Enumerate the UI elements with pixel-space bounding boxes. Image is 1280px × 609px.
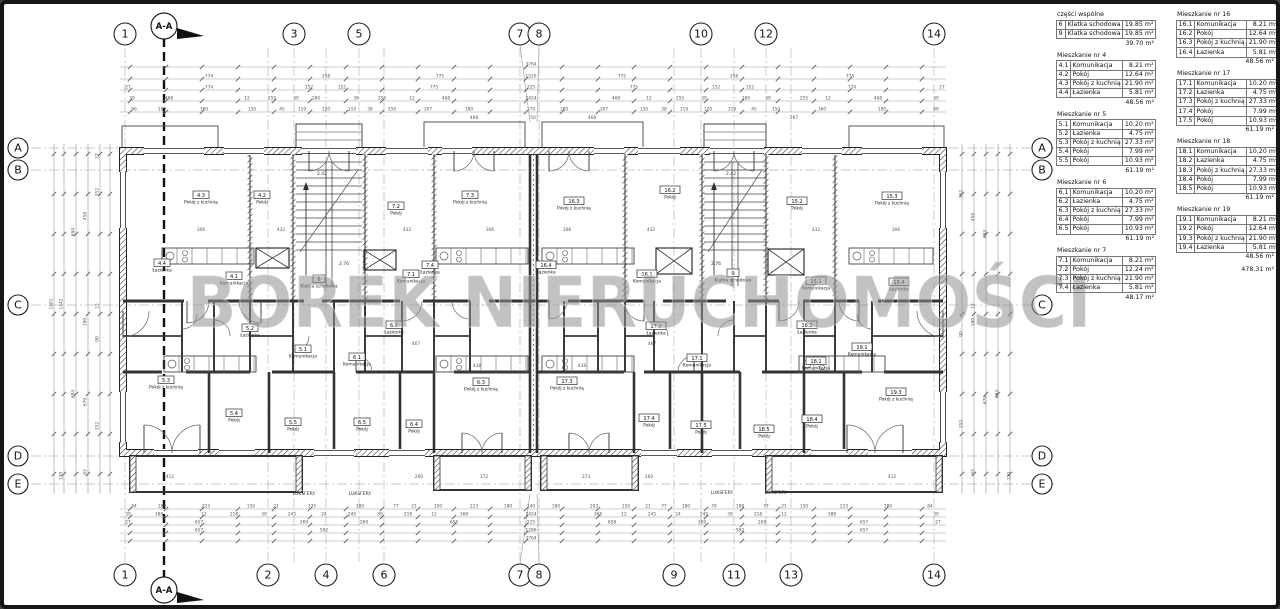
- dim-value: 120: [704, 107, 712, 113]
- room-nm: Komunikacja: [1195, 147, 1247, 156]
- table-title: części wspólne: [1057, 11, 1156, 19]
- room-id: 4.1: [1057, 61, 1071, 70]
- section-direction-flag: [177, 28, 204, 39]
- dim-value: 432: [277, 227, 285, 233]
- table-row: 17.1Komunikacja10.20 m²: [1177, 79, 1280, 88]
- room-area: 12.64 m²: [1123, 70, 1156, 79]
- dim-value: 592: [736, 528, 744, 534]
- dim-value: 39: [293, 96, 299, 102]
- dim-value: 352: [95, 422, 101, 430]
- dim-value: 90: [95, 336, 101, 342]
- dim-value: 96: [131, 107, 137, 113]
- room-number: 19.3: [890, 390, 901, 396]
- room-name: Pokój z kuchnią: [879, 396, 913, 403]
- apartment-total-area: 48.56 m²: [1056, 98, 1156, 106]
- dim-value: 180: [356, 504, 364, 510]
- sink: [853, 252, 861, 260]
- dim-value: 352: [959, 420, 965, 428]
- dim-value: 280: [312, 96, 320, 102]
- room-number: 17.3: [561, 379, 572, 385]
- row-letter-bubble-label: B: [1038, 164, 1046, 177]
- dim-value: 140: [527, 504, 535, 510]
- room-nm: Łazienka: [1071, 197, 1123, 206]
- dim-value: 83: [971, 469, 977, 475]
- dim-value: 412: [166, 474, 174, 480]
- table-row: 5.3Pokój z kuchnią27.33 m²: [1057, 138, 1156, 147]
- room-nm: Pokój z kuchnią: [1195, 98, 1247, 107]
- dim-value: 190: [83, 318, 89, 326]
- room-number: 5.3: [162, 378, 170, 384]
- table-row: 6.3Pokój z kuchnią27.33 m²: [1057, 206, 1156, 215]
- room-id: 19.2: [1177, 225, 1195, 234]
- table-row: 6.2Łazienka4.75 m²: [1057, 197, 1156, 206]
- dim-value: 39: [933, 512, 939, 518]
- room-area: 27.33 m²: [1247, 166, 1280, 175]
- kitchen-counter: [436, 356, 528, 372]
- room-id: 19.1: [1177, 216, 1195, 225]
- terrace: [541, 456, 638, 490]
- table-row: 7.1Komunikacja8.21 m²: [1057, 256, 1156, 265]
- table-row: 6.4Pokój7.99 m²: [1057, 216, 1156, 225]
- room-id: 7.3: [1057, 275, 1071, 284]
- luksfery-label: LUKSFERY: [765, 490, 788, 496]
- room-nm: Komunikacja: [1071, 120, 1123, 129]
- table-row: 7.3Pokój z kuchnią21.90 m²: [1057, 275, 1156, 284]
- row-letter-bubble-label: D: [14, 450, 22, 463]
- room-nm: Pokój: [1195, 225, 1247, 234]
- dim-value: 774: [848, 85, 856, 91]
- table-title: Mieszkanie nr 17: [1177, 70, 1276, 78]
- room-nm: Komunikacja: [1195, 79, 1247, 88]
- table-row: 7.4Łazienka5.81 m²: [1057, 284, 1156, 293]
- sink: [546, 252, 554, 260]
- room-nm: Komunikacja: [1071, 188, 1123, 197]
- dim-value: 27: [125, 85, 131, 91]
- room-name: Pokój: [408, 428, 419, 435]
- room-nm: Pokój: [1195, 30, 1247, 39]
- dim-value: 21: [273, 504, 279, 510]
- sink: [168, 360, 176, 368]
- room-area: 21.90 m²: [1123, 79, 1156, 88]
- dim-value: 12: [825, 96, 831, 102]
- dim-value: 150: [248, 107, 256, 113]
- dim-value: 269: [758, 520, 766, 526]
- dim-value: 269: [698, 520, 706, 526]
- door-swing-arc: [875, 425, 903, 453]
- burner: [183, 251, 188, 256]
- table-title: Mieszkanie nr 16: [1177, 11, 1276, 19]
- grid-axis-bubble-label: 5: [356, 28, 363, 41]
- sink: [440, 252, 448, 260]
- table-row: 17.2Łazienka4.75 m²: [1177, 89, 1280, 98]
- apartment-table: Mieszkanie nr 44.1Komunikacja8.21 m²4.2P…: [1056, 52, 1156, 107]
- room-number: 18.5: [758, 427, 769, 433]
- room-id: 16.1: [1177, 20, 1195, 29]
- room-name: Pokój: [356, 426, 367, 433]
- dim-value: 119: [728, 107, 736, 113]
- room-nm: Łazienka: [1195, 157, 1247, 166]
- dim-value: 152: [712, 85, 720, 91]
- room-area: 8.21 m²: [1123, 61, 1156, 70]
- dim-value: 368: [460, 512, 468, 518]
- apartment-table: Mieszkanie nr 77.1Komunikacja8.21 m²7.2P…: [1056, 247, 1156, 302]
- room-name: Pokój z kuchnią: [453, 199, 487, 206]
- dim-value: 223: [202, 504, 210, 510]
- room-number: 17.5: [695, 423, 706, 429]
- table-row: 16.1Komunikacja8.21 m²: [1177, 20, 1280, 29]
- room-nm: Komunikacja: [1071, 256, 1123, 265]
- dim-value: 223: [840, 504, 848, 510]
- dim-value: 119: [348, 107, 356, 113]
- dim-value: 592: [320, 528, 328, 534]
- terrace: [434, 456, 531, 490]
- room-nm: Pokój: [1071, 265, 1123, 274]
- grid-axis-bubble-label: 4: [323, 569, 330, 582]
- room-id: 16.2: [1177, 30, 1195, 39]
- door-swing-arc: [847, 425, 875, 453]
- dim-value: 180: [465, 107, 473, 113]
- dim-value: 77: [393, 504, 399, 510]
- dim-value: 306: [486, 227, 494, 233]
- burner: [185, 365, 190, 370]
- table-title: Mieszkanie nr 19: [1177, 206, 1276, 214]
- room-id: 5.1: [1057, 120, 1071, 129]
- grid-axis-bubble-label: 6: [381, 569, 388, 582]
- dim-value: 180: [158, 107, 166, 113]
- kitchen-counter: [542, 356, 634, 372]
- dim-value: 1520: [526, 74, 537, 80]
- row-letter-bubble-label: D: [1038, 450, 1046, 463]
- room-nm: Pokój z kuchnią: [1071, 275, 1123, 284]
- dim-value: 775: [630, 85, 638, 91]
- apartment-total-area: 48.56 m²: [1176, 253, 1276, 261]
- row-letter-bubble-label: E: [15, 478, 22, 491]
- dim-value: 468: [874, 96, 882, 102]
- table-row: 4.1Komunikacja8.21 m²: [1057, 61, 1156, 70]
- table-row: 5.5Pokój10.93 m²: [1057, 157, 1156, 166]
- dim-value: 372: [480, 474, 488, 480]
- grid-axis-bubble-label: 7: [517, 28, 524, 41]
- room-number: 18.4: [806, 417, 817, 423]
- balcony-outline: [849, 126, 944, 150]
- room-name: Pokój: [791, 205, 802, 212]
- room-number: 6.3: [477, 380, 485, 386]
- room-area: 10.20 m²: [1123, 120, 1156, 129]
- room-nm: Łazienka: [1195, 89, 1247, 98]
- room-nm: Pokój z kuchnią: [1195, 39, 1247, 48]
- dim-value: 255: [800, 96, 808, 102]
- dim-value: 657: [860, 528, 868, 534]
- dim-value: 360: [200, 107, 208, 113]
- room-name: Pokój z kuchnią: [875, 200, 909, 207]
- dim-value: 388: [828, 512, 836, 518]
- room-number: 5.4: [230, 411, 238, 417]
- terrace-wall: [525, 456, 531, 490]
- table-row: 19.4Łazienka5.81 m²: [1177, 243, 1280, 252]
- watermark: BOREK NIERUCHOMOŚCI: [187, 262, 1092, 344]
- room-name: Pokój: [256, 199, 267, 206]
- dim-value: 24: [675, 512, 681, 518]
- apartment-total-area: 48.17 m²: [1056, 293, 1156, 301]
- room-area: 12.24 m²: [1123, 265, 1156, 274]
- dim-value: 245: [700, 512, 708, 518]
- door-swing-arc: [144, 425, 172, 453]
- room-area: 4.75 m²: [1247, 89, 1280, 98]
- dim-value: 657: [195, 520, 203, 526]
- dim-value: 225: [527, 520, 535, 526]
- row-letter-bubble-label: A: [1038, 142, 1046, 155]
- apartment-total-area: 39.70 m²: [1056, 39, 1156, 47]
- table-row: 4.2Pokój12.64 m²: [1057, 70, 1156, 79]
- room-area: 4.75 m²: [1247, 157, 1280, 166]
- dim-value: 21: [411, 504, 417, 510]
- terrace-wall: [434, 456, 440, 490]
- dim-value: 269: [300, 520, 308, 526]
- room-name: Pokój z kuchnią: [184, 199, 218, 206]
- dim-value: 255: [378, 96, 386, 102]
- room-name: Pokój z kuchnią: [557, 205, 591, 212]
- dim-value: 352: [959, 190, 965, 198]
- room-name: Pokój z kuchnią: [464, 386, 498, 393]
- room-id: 18.5: [1177, 184, 1195, 193]
- grid-axis-bubble-label: 3: [291, 28, 298, 41]
- room-id: 6.5: [1057, 225, 1071, 234]
- area-table-column: Mieszkanie nr 1616.1Komunikacja8.21 m²16…: [1176, 9, 1276, 306]
- room-id: 7.1: [1057, 256, 1071, 265]
- dim-value: 27: [935, 520, 941, 526]
- table-title: Mieszkanie nr 5: [1057, 111, 1156, 119]
- terrace: [766, 456, 942, 492]
- apartment-table: Mieszkanie nr 1616.1Komunikacja8.21 m²16…: [1176, 11, 1276, 66]
- room-area: 21.90 m²: [1247, 39, 1280, 48]
- dim-value: 245: [348, 512, 356, 518]
- room-name: Komunikacja: [289, 354, 317, 360]
- dim-value: 260: [645, 474, 653, 480]
- room-number: 7.3: [466, 193, 474, 199]
- dim-value: 39: [125, 512, 131, 518]
- dim-value: 1442: [59, 298, 65, 309]
- terrace-wall: [296, 456, 302, 492]
- table-row: 5.2Łazienka4.75 m²: [1057, 129, 1156, 138]
- level-value: 2.42: [726, 171, 736, 177]
- dim-value: 306: [197, 227, 205, 233]
- dim-value: 373: [582, 474, 590, 480]
- room-nm: Pokój z kuchnią: [1195, 166, 1247, 175]
- dim-value: 27: [95, 153, 101, 159]
- apartment-table: Mieszkanie nr 66.1Komunikacja10.20 m²6.2…: [1056, 179, 1156, 243]
- room-id: 18.4: [1177, 175, 1195, 184]
- room-name: Łazienka: [151, 268, 172, 274]
- dim-value: 21: [645, 504, 651, 510]
- room-area: 4.75 m²: [1123, 129, 1156, 138]
- table-row: 4.3Pokój z kuchnią21.90 m²: [1057, 79, 1156, 88]
- dim-value: 432: [647, 227, 655, 233]
- apartment-table: Mieszkanie nr 1919.1Komunikacja8.21 m²19…: [1176, 206, 1276, 261]
- room-nm: Pokój: [1195, 184, 1247, 193]
- dim-value: 39: [129, 96, 135, 102]
- dim-value: 306: [892, 227, 900, 233]
- dim-value: 180: [158, 504, 166, 510]
- table-row: 18.1Komunikacja10.20 m²: [1177, 147, 1280, 156]
- room-nm: Komunikacja: [1071, 61, 1123, 70]
- room-number: 16.2: [664, 188, 675, 194]
- dim-value: 152: [746, 85, 754, 91]
- room-id: 17.3: [1177, 98, 1195, 107]
- dim-value: 12: [781, 512, 787, 518]
- room-name: Pokój z kuchnią: [149, 384, 183, 391]
- room-number: 17.4: [643, 416, 654, 422]
- room-area: 10.20 m²: [1123, 188, 1156, 197]
- dim-value: 39: [933, 96, 939, 102]
- room-id: 18.3: [1177, 166, 1195, 175]
- dim-value: 120: [1007, 472, 1013, 480]
- room-area: 7.99 m²: [1123, 216, 1156, 225]
- dim-value: 38: [661, 107, 667, 113]
- dim-value: 468: [588, 115, 596, 121]
- kitchen-counter: [164, 356, 256, 372]
- dim-value: 39: [701, 96, 707, 102]
- dim-value: 1481: [49, 298, 55, 309]
- dim-value: 267: [790, 115, 798, 121]
- apartment-total-area: 61.19 m²: [1176, 126, 1276, 134]
- room-nm: Pokój z kuchnią: [1071, 138, 1123, 147]
- room-nm: Łazienka: [1195, 48, 1247, 57]
- stair-cut-line: [300, 170, 358, 252]
- burner: [457, 359, 462, 364]
- room-number: 5.5: [289, 420, 297, 426]
- dim-value: 78: [711, 504, 717, 510]
- room-number: 6.1: [353, 355, 361, 361]
- dim-value: 45: [279, 107, 285, 113]
- grid-axis-bubble-label: 2: [265, 569, 272, 582]
- dim-value: 45: [751, 107, 757, 113]
- dim-value: 352: [95, 188, 101, 196]
- room-area: 5.81 m²: [1247, 48, 1280, 57]
- dim-value: 170: [527, 107, 535, 113]
- room-number: 18.1: [810, 359, 821, 365]
- burner: [870, 251, 875, 256]
- room-id: 4.3: [1057, 79, 1071, 88]
- room-id: 19.3: [1177, 234, 1195, 243]
- dim-value: 694: [995, 390, 1001, 398]
- dim-value: 39: [765, 96, 771, 102]
- dim-value: 50: [530, 115, 536, 121]
- room-id: 7.4: [1057, 284, 1071, 293]
- dim-value: 245: [288, 512, 296, 518]
- dim-value: 120: [59, 472, 65, 480]
- room-area: 8.21 m²: [1123, 256, 1156, 265]
- apartment-total-area: 61.19 m²: [1176, 194, 1276, 202]
- room-area: 21.90 m²: [1123, 275, 1156, 284]
- dim-value: 468: [470, 115, 478, 121]
- dim-value: 658: [608, 520, 616, 526]
- room-number: 6.5: [358, 420, 366, 426]
- room-area: 19.85 m²: [1123, 30, 1156, 39]
- dim-value: 223: [470, 504, 478, 510]
- room-area: 10.93 m²: [1247, 116, 1280, 125]
- room-id: 6: [1057, 20, 1066, 29]
- dim-value: 39: [353, 96, 359, 102]
- dim-value: 307: [600, 107, 608, 113]
- terrace-wall: [130, 456, 136, 492]
- dim-value: 77: [661, 504, 667, 510]
- room-nm: Pokój: [1071, 225, 1123, 234]
- grid-axis-bubble-label: 1: [122, 28, 129, 41]
- dim-value: 775: [430, 85, 438, 91]
- dim-value: 24: [321, 512, 327, 518]
- room-id: 6.2: [1057, 197, 1071, 206]
- room-id: 18.1: [1177, 147, 1195, 156]
- room-id: 5.4: [1057, 147, 1071, 156]
- room-id: 6.4: [1057, 216, 1071, 225]
- dim-value: 150: [772, 107, 780, 113]
- dim-value: 180: [552, 504, 560, 510]
- room-nm: Pokój z kuchnią: [1071, 206, 1123, 215]
- dim-value: 438: [473, 363, 481, 369]
- room-nm: Klatka schodowa: [1066, 30, 1123, 39]
- dim-value: 269: [360, 520, 368, 526]
- dim-value: 775: [436, 74, 444, 80]
- dim-value: 84: [131, 504, 137, 510]
- room-nm: Łazienka: [1071, 284, 1123, 293]
- apartment-total-area: 61.19 m²: [1056, 166, 1156, 174]
- entry-porch: [296, 124, 362, 150]
- room-nm: Komunikacja: [1195, 216, 1247, 225]
- dim-value: 119: [298, 107, 306, 113]
- dim-value: 218: [754, 512, 762, 518]
- dim-value: 152: [305, 85, 313, 91]
- dim-value: 218: [404, 512, 412, 518]
- room-area: 12.64 m²: [1247, 225, 1280, 234]
- dim-value: 180: [560, 107, 568, 113]
- dim-value: 694: [71, 228, 77, 236]
- grid-axis-bubble-label: 10: [694, 28, 708, 41]
- dim-value: 21: [781, 504, 787, 510]
- room-number: 17.1: [691, 356, 702, 362]
- room-number: 5.1: [299, 347, 307, 353]
- room-number: 4.2: [258, 193, 266, 199]
- dim-value: 180: [682, 504, 690, 510]
- dim-value: 2424: [526, 512, 537, 518]
- apartment-table: części wspólne6Klatka schodowa19.85 m²9K…: [1056, 11, 1156, 48]
- dim-value: 468: [165, 96, 173, 102]
- dim-value: 27: [125, 520, 131, 526]
- dim-value: 39: [261, 512, 267, 518]
- room-area: 27.33 m²: [1123, 138, 1156, 147]
- room-id: 6.1: [1057, 188, 1071, 197]
- room-nm: Komunikacja: [1195, 20, 1247, 29]
- room-name: Komunikacja: [848, 352, 876, 358]
- grid-axis-bubble-label: 7: [517, 569, 524, 582]
- sink: [440, 360, 448, 368]
- dim-value: 307: [424, 107, 432, 113]
- room-area: 10.93 m²: [1123, 225, 1156, 234]
- dim-value: 225: [527, 85, 535, 91]
- room-id: 16.3: [1177, 39, 1195, 48]
- room-id: 5.3: [1057, 138, 1071, 147]
- room-area: 10.93 m²: [1247, 184, 1280, 193]
- row-letter-bubble-label: E: [1039, 478, 1046, 491]
- dim-value: 39: [377, 512, 383, 518]
- dim-value: 458: [83, 212, 89, 220]
- room-number: 15.3: [886, 194, 897, 200]
- level-value: 2.42: [317, 171, 327, 177]
- dim-value: 119: [680, 107, 688, 113]
- table-row: 9Klatka schodowa19.85 m²: [1057, 30, 1156, 39]
- room-nm: Łazienka: [1071, 89, 1123, 98]
- grid-axis-bubble-label: 8: [536, 28, 543, 41]
- apartment-table: Mieszkanie nr 1818.1Komunikacja10.20 m²1…: [1176, 138, 1276, 202]
